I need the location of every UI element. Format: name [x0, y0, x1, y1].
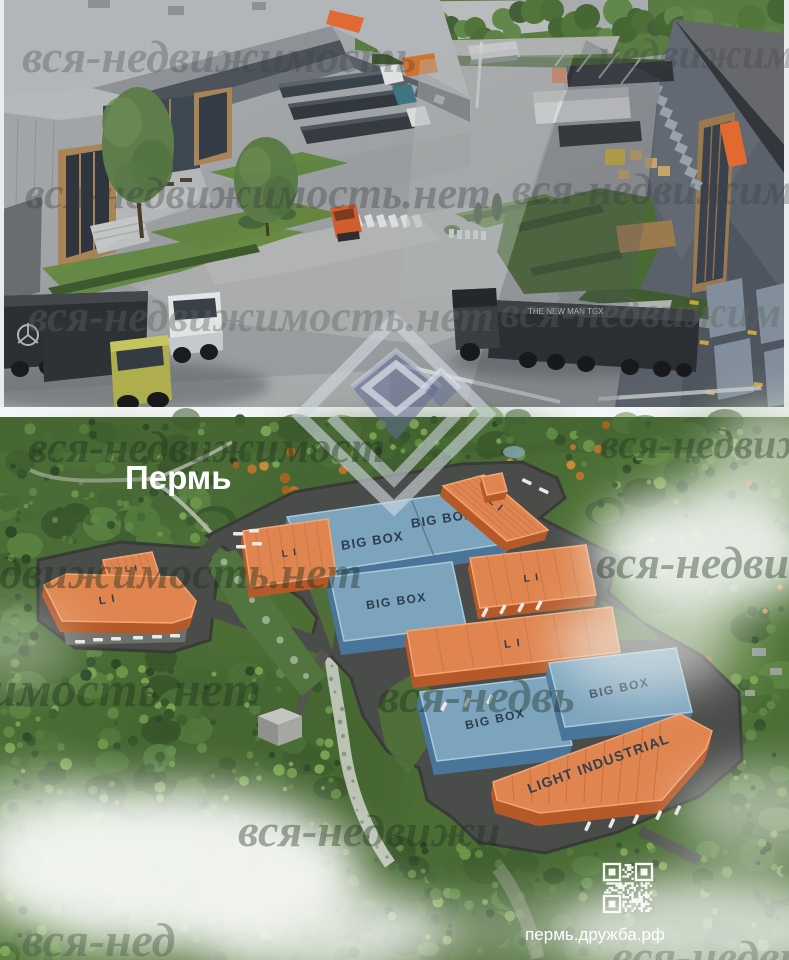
svg-text:вся-недвижим: вся-недвижим — [512, 165, 789, 214]
svg-text:вся-недвь: вся-недвь — [378, 670, 575, 723]
svg-text:вся-недвижим: вся-недвижим — [500, 288, 781, 337]
svg-text:вся-недвижимость.нет: вся-недвижимость.нет — [0, 661, 261, 717]
svg-text:вся-недвижимость.нет: вся-недвижимость.нет — [0, 547, 362, 598]
svg-text:вся-недвиж: вся-недвиж — [596, 537, 789, 588]
svg-text:L I: L I — [503, 637, 521, 651]
svg-text:недвижим: недвижим — [598, 32, 789, 78]
svg-text:вся-недвижимость: вся-недвижимость — [22, 31, 416, 82]
svg-text:вся-недвижимость.нет: вся-недвижимость.нет — [28, 292, 494, 341]
svg-text:вся-недвижим: вся-недвижим — [600, 422, 789, 468]
svg-text:L I: L I — [523, 572, 540, 585]
svg-text:вся-недвижи: вся-недвижи — [238, 805, 501, 856]
svg-text:вся-недвижимость.нет: вся-недвижимость.нет — [25, 169, 491, 218]
svg-text:вся-нед: вся-нед — [22, 914, 175, 960]
svg-text:вся-недвижи: вся-недвижи — [612, 931, 789, 960]
svg-text:вся-недвижимост: вся-недвижимост — [28, 423, 385, 472]
